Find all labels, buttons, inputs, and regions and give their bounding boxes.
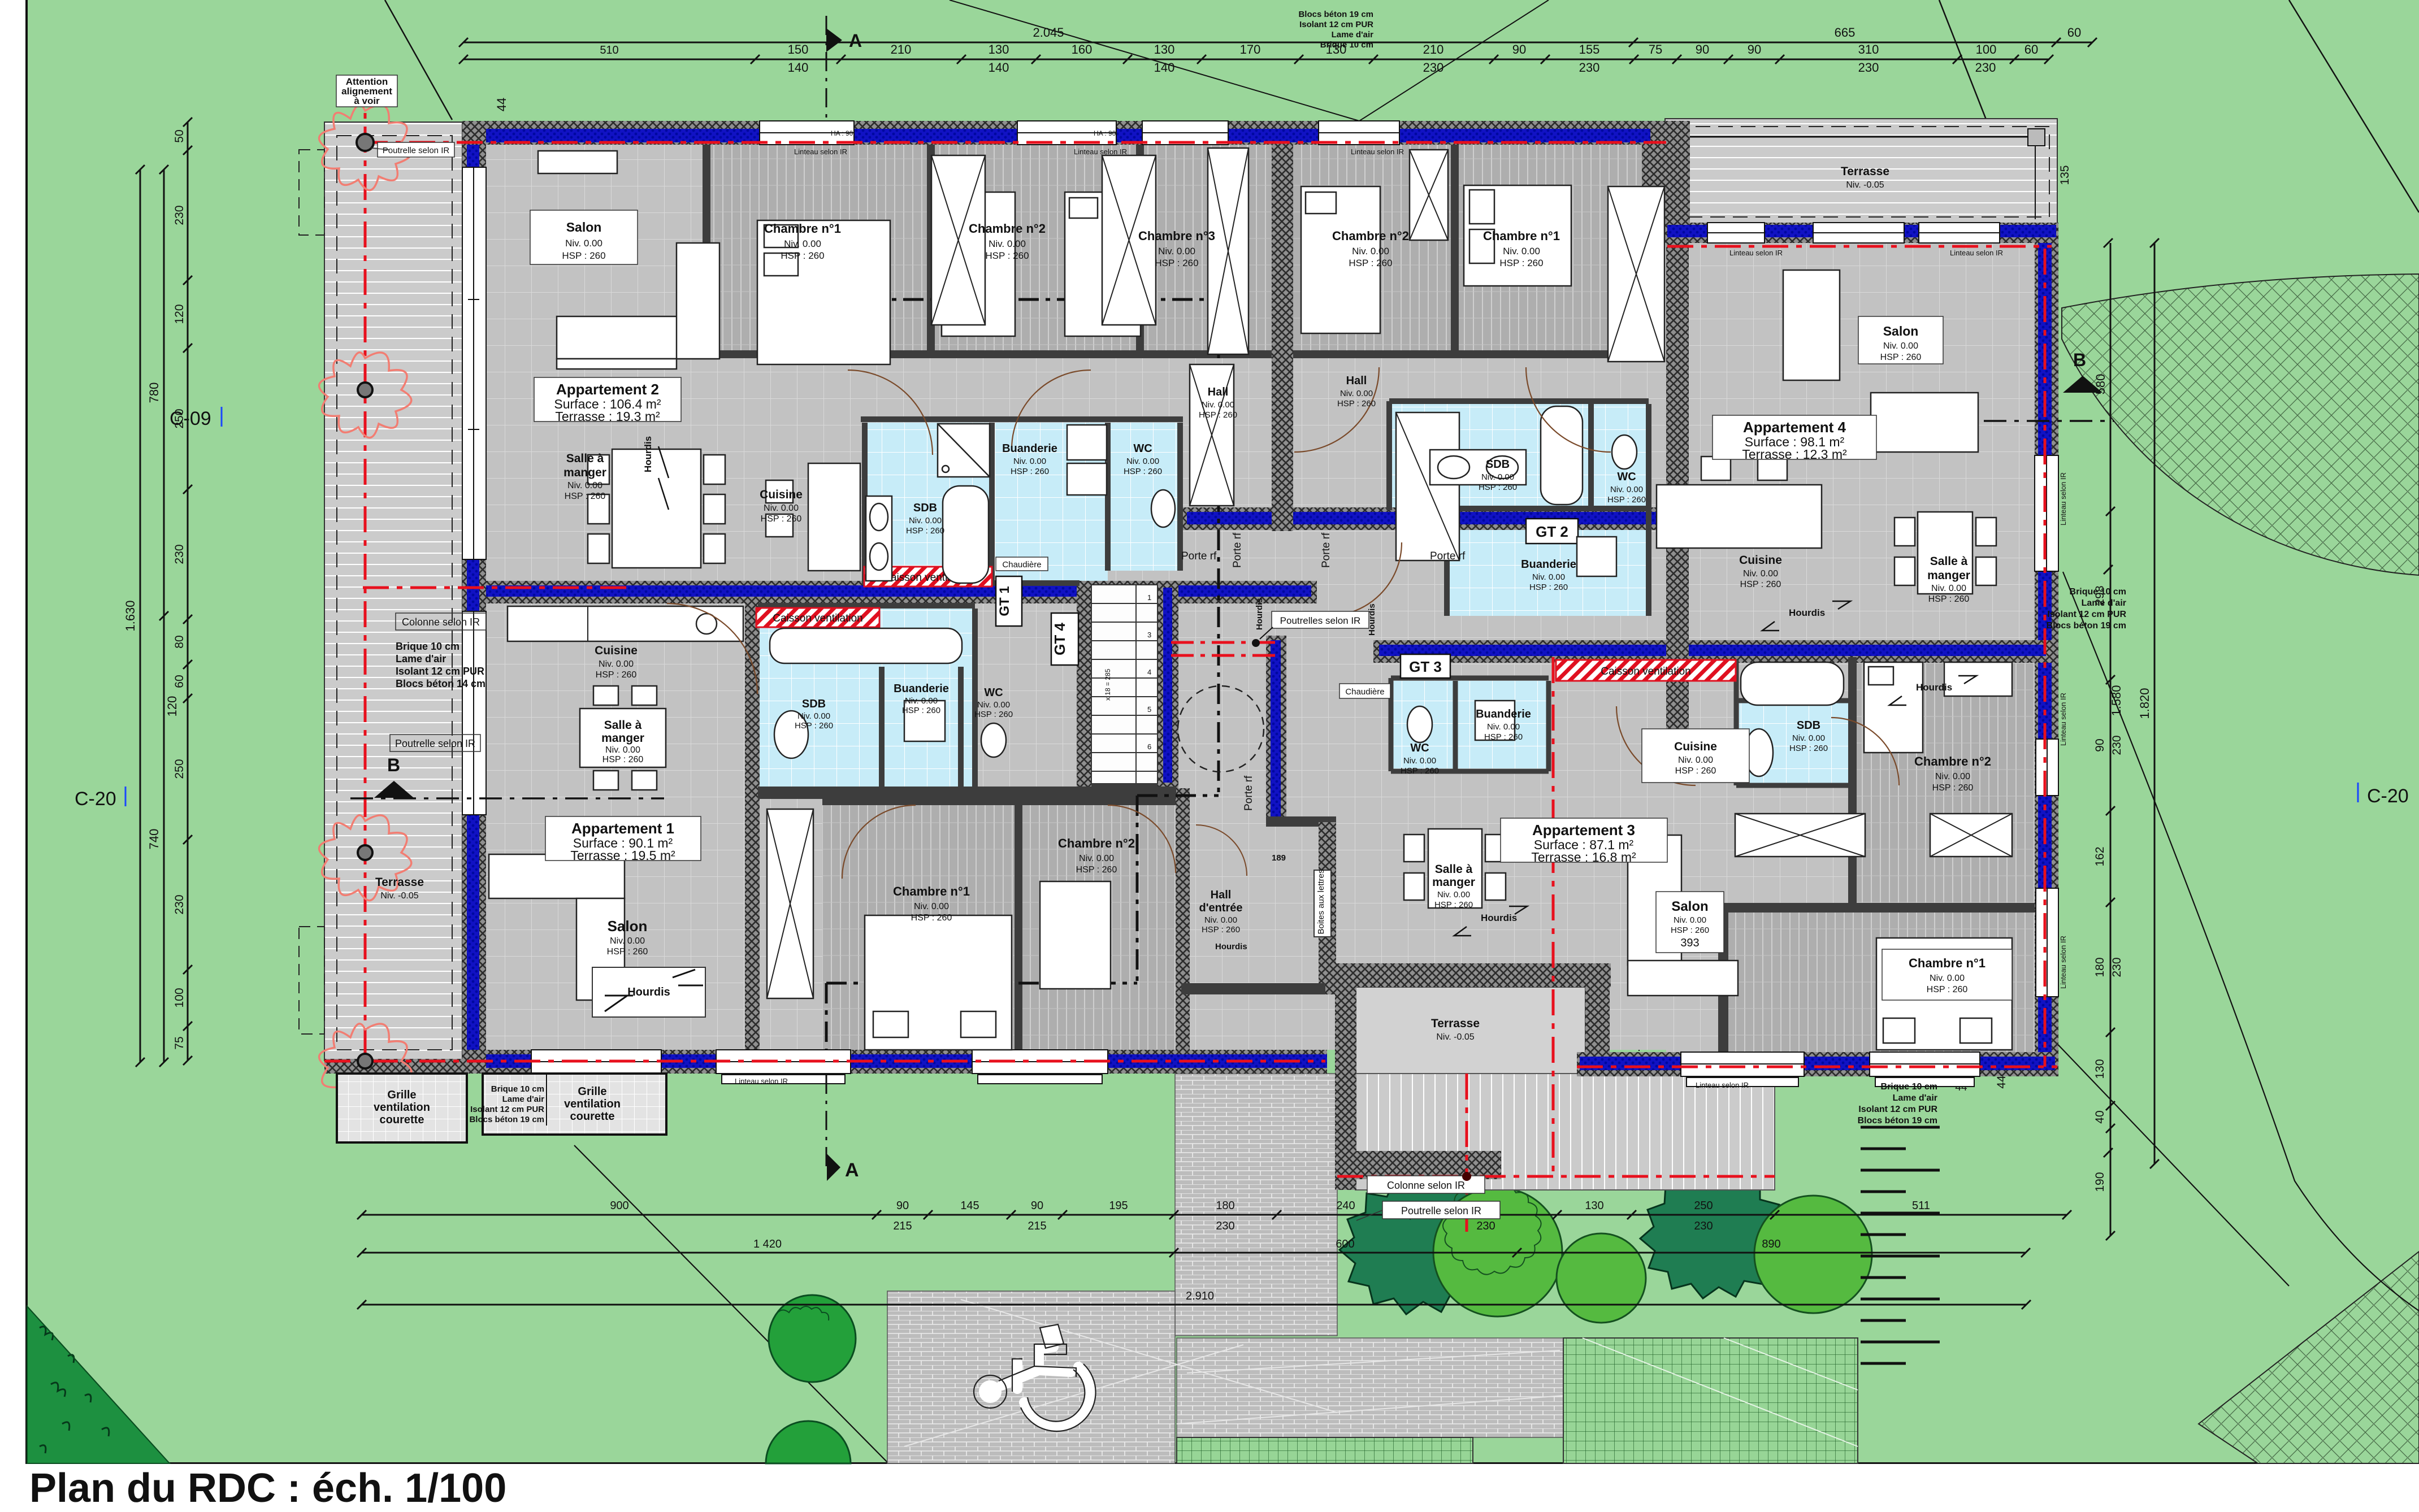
svg-text:44: 44	[495, 98, 509, 111]
svg-text:1.820: 1.820	[2138, 688, 2152, 719]
svg-text:HSP : 260: HSP : 260	[1789, 744, 1828, 753]
svg-text:HSP : 260: HSP : 260	[565, 492, 606, 501]
svg-text:Niv. 0.00: Niv. 0.00	[599, 659, 634, 669]
svg-text:Salle à: Salle à	[566, 452, 604, 465]
svg-text:Terrasse : 16.8 m²: Terrasse : 16.8 m²	[1531, 850, 1636, 864]
svg-text:SDB: SDB	[1486, 458, 1510, 471]
svg-text:2.045: 2.045	[1033, 25, 1064, 40]
svg-text:140: 140	[788, 60, 809, 75]
svg-text:230: 230	[1216, 1220, 1234, 1232]
svg-text:Niv. 0.00: Niv. 0.00	[1610, 485, 1643, 494]
svg-text:Appartement 4: Appartement 4	[1743, 419, 1846, 436]
svg-text:HSP : 260: HSP : 260	[911, 913, 952, 923]
svg-text:Terrasse: Terrasse	[375, 876, 424, 889]
svg-text:GT 2: GT 2	[1536, 523, 1568, 540]
svg-text:145: 145	[960, 1200, 979, 1212]
svg-text:HSP : 260: HSP : 260	[974, 710, 1013, 719]
svg-text:Porte rf: Porte rf	[1430, 550, 1466, 562]
svg-text:120: 120	[173, 304, 186, 324]
svg-text:à voir: à voir	[354, 95, 380, 106]
svg-text:Appartement 3: Appartement 3	[1532, 822, 1635, 838]
svg-text:890: 890	[1762, 1238, 1780, 1250]
svg-text:Linteau selon IR: Linteau selon IR	[1696, 1081, 1749, 1089]
svg-text:GT 4: GT 4	[1051, 623, 1068, 655]
svg-text:Hourdis: Hourdis	[1789, 607, 1825, 618]
svg-text:ventilation: ventilation	[564, 1098, 621, 1110]
svg-text:Chambre n°1: Chambre n°1	[1909, 956, 1986, 970]
svg-text:Niv. 0.00: Niv. 0.00	[1931, 584, 1966, 593]
svg-text:Buanderie: Buanderie	[894, 683, 949, 695]
svg-text:Salon: Salon	[608, 918, 648, 935]
svg-text:Cuisine: Cuisine	[1739, 554, 1782, 567]
svg-text:190: 190	[2093, 1172, 2106, 1192]
svg-text:150: 150	[788, 42, 809, 57]
svg-text:170: 170	[1240, 42, 1261, 57]
svg-text:manger: manger	[563, 466, 606, 479]
svg-text:HSP : 260: HSP : 260	[781, 250, 824, 261]
svg-text:Grille: Grille	[387, 1089, 416, 1101]
svg-text:310: 310	[1858, 42, 1879, 57]
svg-text:180: 180	[1216, 1200, 1234, 1212]
svg-text:Linteau selon IR: Linteau selon IR	[2059, 936, 2067, 989]
svg-text:60: 60	[2024, 42, 2038, 57]
svg-text:Colonne selon IR: Colonne selon IR	[402, 616, 480, 628]
svg-text:HSP : 260: HSP : 260	[1401, 766, 1439, 776]
svg-text:162: 162	[2093, 846, 2106, 866]
svg-text:Niv. 0.00: Niv. 0.00	[1674, 915, 1706, 925]
svg-text:Niv. 0.00: Niv. 0.00	[1352, 246, 1389, 257]
svg-text:Porte rf: Porte rf	[1320, 532, 1332, 568]
svg-text:manger: manger	[1927, 569, 1970, 582]
svg-text:Niv. 0.00: Niv. 0.00	[1532, 572, 1565, 582]
svg-text:SDB: SDB	[802, 698, 826, 710]
svg-text:HSP : 260: HSP : 260	[1927, 985, 1968, 994]
svg-text:215: 215	[1028, 1220, 1046, 1232]
svg-text:HSP : 260: HSP : 260	[1076, 865, 1117, 875]
svg-text:230: 230	[1476, 1220, 1495, 1232]
svg-text:WC: WC	[984, 687, 1003, 699]
svg-text:Linteau selon IR: Linteau selon IR	[1351, 147, 1404, 156]
svg-text:Isolant 12 cm PUR: Isolant 12 cm PUR	[1299, 20, 1373, 29]
svg-text:Niv. 0.00: Niv. 0.00	[1126, 457, 1159, 466]
svg-text:HA : 90: HA : 90	[1094, 129, 1116, 137]
svg-text:HSP : 260: HSP : 260	[1011, 467, 1049, 476]
svg-text:40: 40	[2093, 1110, 2106, 1123]
svg-text:Terrasse: Terrasse	[1841, 165, 1889, 178]
svg-text:Niv. 0.00: Niv. 0.00	[1503, 246, 1540, 257]
svg-text:HSP : 260: HSP : 260	[1499, 258, 1543, 268]
svg-text:Linteau selon IR: Linteau selon IR	[794, 147, 847, 156]
svg-text:90: 90	[1748, 42, 1761, 57]
svg-text:250: 250	[173, 759, 186, 779]
svg-text:Cuisine: Cuisine	[1674, 740, 1717, 753]
svg-text:5: 5	[1147, 705, 1151, 714]
svg-text:230: 230	[173, 894, 186, 914]
svg-text:80: 80	[173, 635, 186, 648]
svg-text:Buanderie: Buanderie	[1476, 708, 1531, 720]
svg-text:HSP : 260: HSP : 260	[1202, 925, 1240, 935]
svg-text:Caisson ventilation: Caisson ventilation	[773, 612, 862, 624]
svg-text:ventilation: ventilation	[374, 1101, 430, 1114]
svg-text:Linteau selon IR: Linteau selon IR	[1074, 147, 1127, 156]
svg-text:Lame d'air: Lame d'air	[396, 653, 446, 664]
svg-text:Niv. 0.00: Niv. 0.00	[1935, 772, 1970, 781]
svg-text:60: 60	[2067, 25, 2081, 40]
svg-text:740: 740	[147, 829, 161, 850]
svg-text:Poutrelle selon IR: Poutrelle selon IR	[395, 738, 475, 749]
svg-text:44: 44	[1995, 1075, 2008, 1089]
svg-text:HSP : 260: HSP : 260	[596, 670, 637, 680]
svg-text:Niv. 0.00: Niv. 0.00	[565, 238, 602, 249]
svg-text:Niv. 0.00: Niv. 0.00	[1678, 755, 1713, 765]
svg-text:Niv. 0.00: Niv. 0.00	[977, 700, 1010, 710]
svg-text:manger: manger	[601, 732, 644, 745]
svg-text:Brique 10 cm: Brique 10 cm	[491, 1084, 544, 1094]
svg-text:180: 180	[2093, 957, 2106, 977]
svg-text:Niv. 0.00: Niv. 0.00	[1487, 722, 1520, 732]
svg-text:Niv. 0.00: Niv. 0.00	[1930, 974, 1965, 983]
svg-text:Niv. 0.00: Niv. 0.00	[610, 936, 645, 946]
svg-text:Chambre n°2: Chambre n°2	[1058, 836, 1135, 850]
svg-text:Niv. 0.00: Niv. 0.00	[1792, 733, 1825, 743]
svg-text:Porte rf: Porte rf	[1232, 532, 1243, 568]
svg-text:230: 230	[1858, 60, 1879, 75]
svg-text:HSP : 260: HSP : 260	[1349, 258, 1392, 268]
svg-text:HSP : 260: HSP : 260	[1607, 495, 1646, 505]
svg-text:HSP : 260: HSP : 260	[761, 514, 802, 524]
svg-text:1.580: 1.580	[2109, 685, 2123, 716]
svg-text:1.630: 1.630	[123, 600, 137, 631]
svg-text:Salle à: Salle à	[1435, 863, 1473, 876]
svg-text:Blocs béton 19 cm: Blocs béton 19 cm	[1298, 10, 1373, 19]
svg-text:Lame d'air: Lame d'air	[1893, 1093, 1937, 1103]
svg-text:50: 50	[173, 129, 186, 142]
svg-text:Salon: Salon	[1883, 324, 1919, 338]
svg-text:Chambre n°2: Chambre n°2	[1332, 229, 1409, 243]
svg-text:HSP : 260: HSP : 260	[1479, 483, 1517, 492]
svg-text:HSP : 260: HSP : 260	[1932, 783, 1974, 793]
svg-text:Buanderie: Buanderie	[1521, 558, 1576, 571]
svg-text:Isolant 12 cm PUR: Isolant 12 cm PUR	[2047, 610, 2126, 619]
svg-text:Niv. 0.00: Niv. 0.00	[1340, 389, 1373, 398]
svg-text:155: 155	[1579, 42, 1600, 57]
svg-text:HSP : 260: HSP : 260	[1124, 467, 1162, 476]
svg-text:Linteau selon IR: Linteau selon IR	[1950, 249, 2003, 257]
svg-text:A: A	[849, 31, 862, 51]
svg-text:6: 6	[1147, 742, 1151, 751]
svg-text:x 18 = 285: x 18 = 285	[1104, 668, 1112, 701]
svg-text:HSP : 260: HSP : 260	[1529, 583, 1568, 592]
svg-text:Blocs béton 19 cm: Blocs béton 19 cm	[1858, 1116, 1937, 1126]
svg-text:Chambre n°3: Chambre n°3	[1138, 229, 1215, 243]
svg-text:Chambre n°1: Chambre n°1	[764, 221, 841, 236]
svg-text:manger: manger	[1432, 876, 1475, 889]
svg-text:Poutrelle selon IR: Poutrelle selon IR	[1401, 1205, 1481, 1216]
svg-text:Niv. 0.00: Niv. 0.00	[1158, 246, 1195, 257]
svg-text:Lame d'air: Lame d'air	[502, 1094, 545, 1104]
svg-text:Niv. 0.00: Niv. 0.00	[1883, 341, 1918, 351]
svg-text:Niv. 0.00: Niv. 0.00	[1204, 915, 1237, 925]
svg-text:160: 160	[1072, 42, 1093, 57]
svg-text:HSP : 260: HSP : 260	[1155, 258, 1198, 268]
svg-text:courette: courette	[570, 1110, 615, 1123]
svg-text:Chambre n°1: Chambre n°1	[893, 884, 970, 898]
svg-text:Chambre n°2: Chambre n°2	[1914, 754, 1991, 768]
svg-text:HSP : 260: HSP : 260	[602, 755, 644, 764]
svg-text:SDB: SDB	[913, 502, 937, 514]
svg-text:Salle à: Salle à	[1930, 555, 1968, 568]
svg-text:130: 130	[989, 42, 1009, 57]
svg-text:Hall: Hall	[1211, 889, 1232, 901]
svg-text:Porte rf: Porte rf	[1243, 775, 1255, 811]
svg-text:4: 4	[1147, 668, 1151, 676]
svg-text:Terrasse : 19.3 m²: Terrasse : 19.3 m²	[555, 409, 660, 424]
svg-text:90: 90	[1696, 42, 1709, 57]
svg-text:Chambre n°1: Chambre n°1	[1483, 229, 1560, 243]
svg-text:Salon: Salon	[566, 220, 602, 234]
svg-text:120: 120	[165, 696, 179, 717]
svg-text:189: 189	[1272, 853, 1286, 863]
svg-text:Colonne selon IR: Colonne selon IR	[1387, 1180, 1465, 1191]
svg-text:210: 210	[891, 42, 912, 57]
svg-text:HSP : 260: HSP : 260	[1740, 580, 1781, 589]
svg-text:Cuisine: Cuisine	[595, 644, 638, 657]
svg-text:Lame d'air: Lame d'air	[2082, 598, 2126, 608]
svg-text:Niv. 0.00: Niv. 0.00	[989, 238, 1026, 249]
svg-text:3: 3	[1147, 631, 1151, 639]
svg-text:Niv. 0.00: Niv. 0.00	[764, 503, 799, 513]
svg-text:511: 511	[1912, 1200, 1930, 1212]
svg-text:HSP : 260: HSP : 260	[1199, 410, 1237, 420]
svg-text:Isolant 12 cm PUR: Isolant 12 cm PUR	[470, 1105, 544, 1114]
svg-text:HSP : 260: HSP : 260	[1484, 732, 1523, 742]
svg-text:1: 1	[1147, 593, 1151, 602]
svg-text:135: 135	[2058, 165, 2071, 185]
svg-text:Isolant 12 cm PUR: Isolant 12 cm PUR	[396, 666, 484, 677]
svg-text:Blocs béton 14 cm: Blocs béton 14 cm	[396, 678, 485, 689]
svg-text:230: 230	[173, 205, 186, 225]
svg-text:Linteau selon IR: Linteau selon IR	[735, 1077, 788, 1085]
svg-text:HSP : 260: HSP : 260	[562, 250, 605, 261]
svg-text:90: 90	[896, 1200, 909, 1212]
svg-text:WC: WC	[1617, 471, 1636, 483]
svg-text:WC: WC	[1410, 742, 1429, 754]
svg-text:HSP : 260: HSP : 260	[607, 947, 648, 957]
svg-text:HSP : 260: HSP : 260	[1880, 353, 1922, 362]
svg-text:Niv. 0.00: Niv. 0.00	[784, 238, 821, 249]
svg-text:Hall: Hall	[1208, 386, 1229, 398]
svg-text:Hourdis: Hourdis	[1481, 913, 1517, 923]
svg-text:Niv. 0.00: Niv. 0.00	[797, 711, 830, 721]
svg-text:Niv. -0.05: Niv. -0.05	[380, 891, 418, 901]
svg-text:Hall: Hall	[1346, 375, 1367, 387]
svg-text:Blocs béton 19 cm: Blocs béton 19 cm	[2047, 621, 2126, 631]
svg-text:Porte rf: Porte rf	[1181, 550, 1217, 562]
svg-text:230: 230	[1975, 60, 1996, 75]
svg-text:Brique 10 cm: Brique 10 cm	[1881, 1082, 1937, 1092]
svg-text:HSP : 260: HSP : 260	[1671, 926, 1709, 935]
svg-text:Niv. 0.00: Niv. 0.00	[1481, 472, 1514, 482]
svg-text:Brique 10 cm: Brique 10 cm	[2070, 587, 2126, 597]
svg-text:75: 75	[1649, 42, 1662, 57]
svg-text:100: 100	[1976, 42, 1997, 57]
svg-text:130: 130	[1585, 1200, 1603, 1212]
svg-text:Niv. -0.05: Niv. -0.05	[1846, 180, 1884, 190]
svg-text:HSP : 260: HSP : 260	[1337, 399, 1376, 409]
svg-text:Caisson ventilation: Caisson ventilation	[1601, 666, 1690, 677]
svg-text:Buanderie: Buanderie	[1002, 442, 1057, 455]
svg-text:Linteau selon IR: Linteau selon IR	[2059, 472, 2067, 525]
svg-text:Salon: Salon	[1671, 899, 1708, 914]
svg-text:60: 60	[173, 675, 186, 688]
svg-text:HSP : 260: HSP : 260	[906, 526, 944, 536]
svg-text:Chaudière: Chaudière	[1002, 560, 1041, 570]
svg-text:Niv. 0.00: Niv. 0.00	[1013, 457, 1046, 466]
svg-text:Terrasse : 19.5 m²: Terrasse : 19.5 m²	[570, 848, 675, 863]
svg-text:215: 215	[893, 1220, 912, 1232]
svg-text:WC: WC	[1133, 442, 1152, 455]
svg-text:510: 510	[600, 44, 618, 57]
svg-text:230: 230	[1423, 60, 1444, 75]
svg-text:HSP : 260: HSP : 260	[902, 706, 940, 715]
svg-text:130: 130	[1154, 42, 1175, 57]
svg-text:Niv. 0.00: Niv. 0.00	[1437, 890, 1470, 900]
svg-text:Salle à: Salle à	[604, 719, 642, 732]
svg-text:Niv. 0.00: Niv. 0.00	[1202, 400, 1234, 410]
svg-text:Niv. 0.00: Niv. 0.00	[1079, 854, 1114, 863]
svg-text:GT 3: GT 3	[1409, 658, 1442, 675]
svg-text:C-20: C-20	[75, 788, 116, 810]
svg-text:Niv. 0.00: Niv. 0.00	[914, 902, 949, 911]
svg-text:Linteau selon IR: Linteau selon IR	[1729, 249, 1783, 257]
svg-text:250: 250	[1694, 1200, 1713, 1212]
svg-text:Poutrelle selon IR: Poutrelle selon IR	[383, 146, 450, 155]
svg-text:GT 1: GT 1	[997, 586, 1012, 616]
svg-text:230: 230	[173, 544, 186, 564]
svg-text:Hourdis: Hourdis	[1916, 682, 1952, 693]
svg-text:SDB: SDB	[1797, 719, 1820, 732]
svg-text:HSP : 260: HSP : 260	[1675, 766, 1716, 776]
svg-text:Hourdis: Hourdis	[643, 436, 653, 472]
svg-text:Poutrelles selon IR: Poutrelles selon IR	[1280, 615, 1361, 626]
svg-text:195: 195	[1109, 1200, 1128, 1212]
svg-text:Niv. 0.00: Niv. 0.00	[1743, 569, 1778, 579]
svg-text:C-20: C-20	[2367, 785, 2409, 807]
svg-text:Hourdis: Hourdis	[1215, 942, 1247, 951]
svg-text:600: 600	[1336, 1238, 1354, 1250]
svg-text:Appartement 2: Appartement 2	[556, 381, 659, 398]
svg-text:Grille: Grille	[578, 1085, 606, 1098]
svg-text:Brique 10 cm: Brique 10 cm	[1320, 40, 1373, 50]
svg-text:140: 140	[989, 60, 1009, 75]
svg-text:HSP : 260: HSP : 260	[985, 250, 1029, 261]
svg-text:Hourdis: Hourdis	[627, 986, 670, 998]
svg-text:665: 665	[1835, 25, 1856, 40]
svg-text:Boites aux lettres: Boites aux lettres	[1316, 869, 1326, 934]
svg-text:Niv. 0.00: Niv. 0.00	[905, 696, 938, 706]
svg-text:240: 240	[1336, 1200, 1355, 1212]
svg-text:HSP : 260: HSP : 260	[795, 721, 833, 731]
svg-text:B: B	[2073, 350, 2086, 370]
svg-text:90: 90	[1031, 1200, 1043, 1212]
svg-text:Appartement 1: Appartement 1	[571, 820, 674, 837]
svg-text:Brique 10 cm: Brique 10 cm	[396, 641, 459, 652]
svg-text:Chambre n°2: Chambre n°2	[969, 221, 1046, 236]
svg-text:Isolant 12 cm PUR: Isolant 12 cm PUR	[1858, 1105, 1937, 1114]
svg-text:Terrasse: Terrasse	[1431, 1017, 1480, 1030]
svg-text:HA : 90: HA : 90	[831, 129, 853, 137]
svg-text:Blocs béton 19 cm: Blocs béton 19 cm	[469, 1115, 544, 1124]
svg-text:Cuisine: Cuisine	[760, 488, 803, 501]
svg-text:230: 230	[1694, 1220, 1713, 1232]
svg-text:Niv. 0.00: Niv. 0.00	[567, 481, 602, 490]
svg-text:Hourdis: Hourdis	[1255, 598, 1264, 630]
svg-text:Terrasse : 12.3 m²: Terrasse : 12.3 m²	[1742, 447, 1847, 462]
svg-text:2.910: 2.910	[1186, 1290, 1214, 1302]
svg-text:90: 90	[2093, 738, 2106, 751]
svg-text:130: 130	[2093, 1059, 2106, 1079]
svg-text:Niv. -0.05: Niv. -0.05	[1436, 1032, 1474, 1042]
svg-text:courette: courette	[380, 1114, 424, 1126]
svg-text:Plan du RDC : éch. 1/100: Plan du RDC : éch. 1/100	[29, 1466, 506, 1511]
svg-text:1 420: 1 420	[753, 1238, 782, 1250]
svg-text:230: 230	[2110, 957, 2123, 977]
svg-text:Lame d'air: Lame d'air	[1332, 30, 1374, 40]
svg-text:Chaudière: Chaudière	[1345, 687, 1384, 697]
svg-text:A: A	[845, 1159, 859, 1181]
svg-text:90: 90	[1512, 42, 1526, 57]
svg-text:230: 230	[2110, 735, 2123, 755]
svg-text:C-09: C-09	[170, 408, 211, 429]
svg-text:75: 75	[173, 1036, 186, 1049]
svg-text:Linteau selon IR: Linteau selon IR	[2059, 693, 2067, 746]
svg-text:HSP : 260: HSP : 260	[1434, 900, 1473, 910]
svg-text:100: 100	[173, 988, 186, 1007]
svg-text:Niv. 0.00: Niv. 0.00	[909, 516, 942, 525]
svg-text:HSP : 260: HSP : 260	[1928, 594, 1970, 604]
svg-text:210: 210	[1423, 42, 1444, 57]
svg-text:900: 900	[610, 1200, 628, 1212]
svg-text:230: 230	[1579, 60, 1600, 75]
svg-text:B: B	[387, 755, 400, 775]
svg-text:393: 393	[1680, 937, 1699, 949]
svg-text:Niv. 0.00: Niv. 0.00	[605, 745, 640, 755]
svg-text:780: 780	[147, 383, 161, 403]
svg-text:140: 140	[1154, 60, 1175, 75]
svg-text:d'entrée: d'entrée	[1199, 902, 1242, 914]
svg-text:Niv. 0.00: Niv. 0.00	[1403, 756, 1436, 766]
